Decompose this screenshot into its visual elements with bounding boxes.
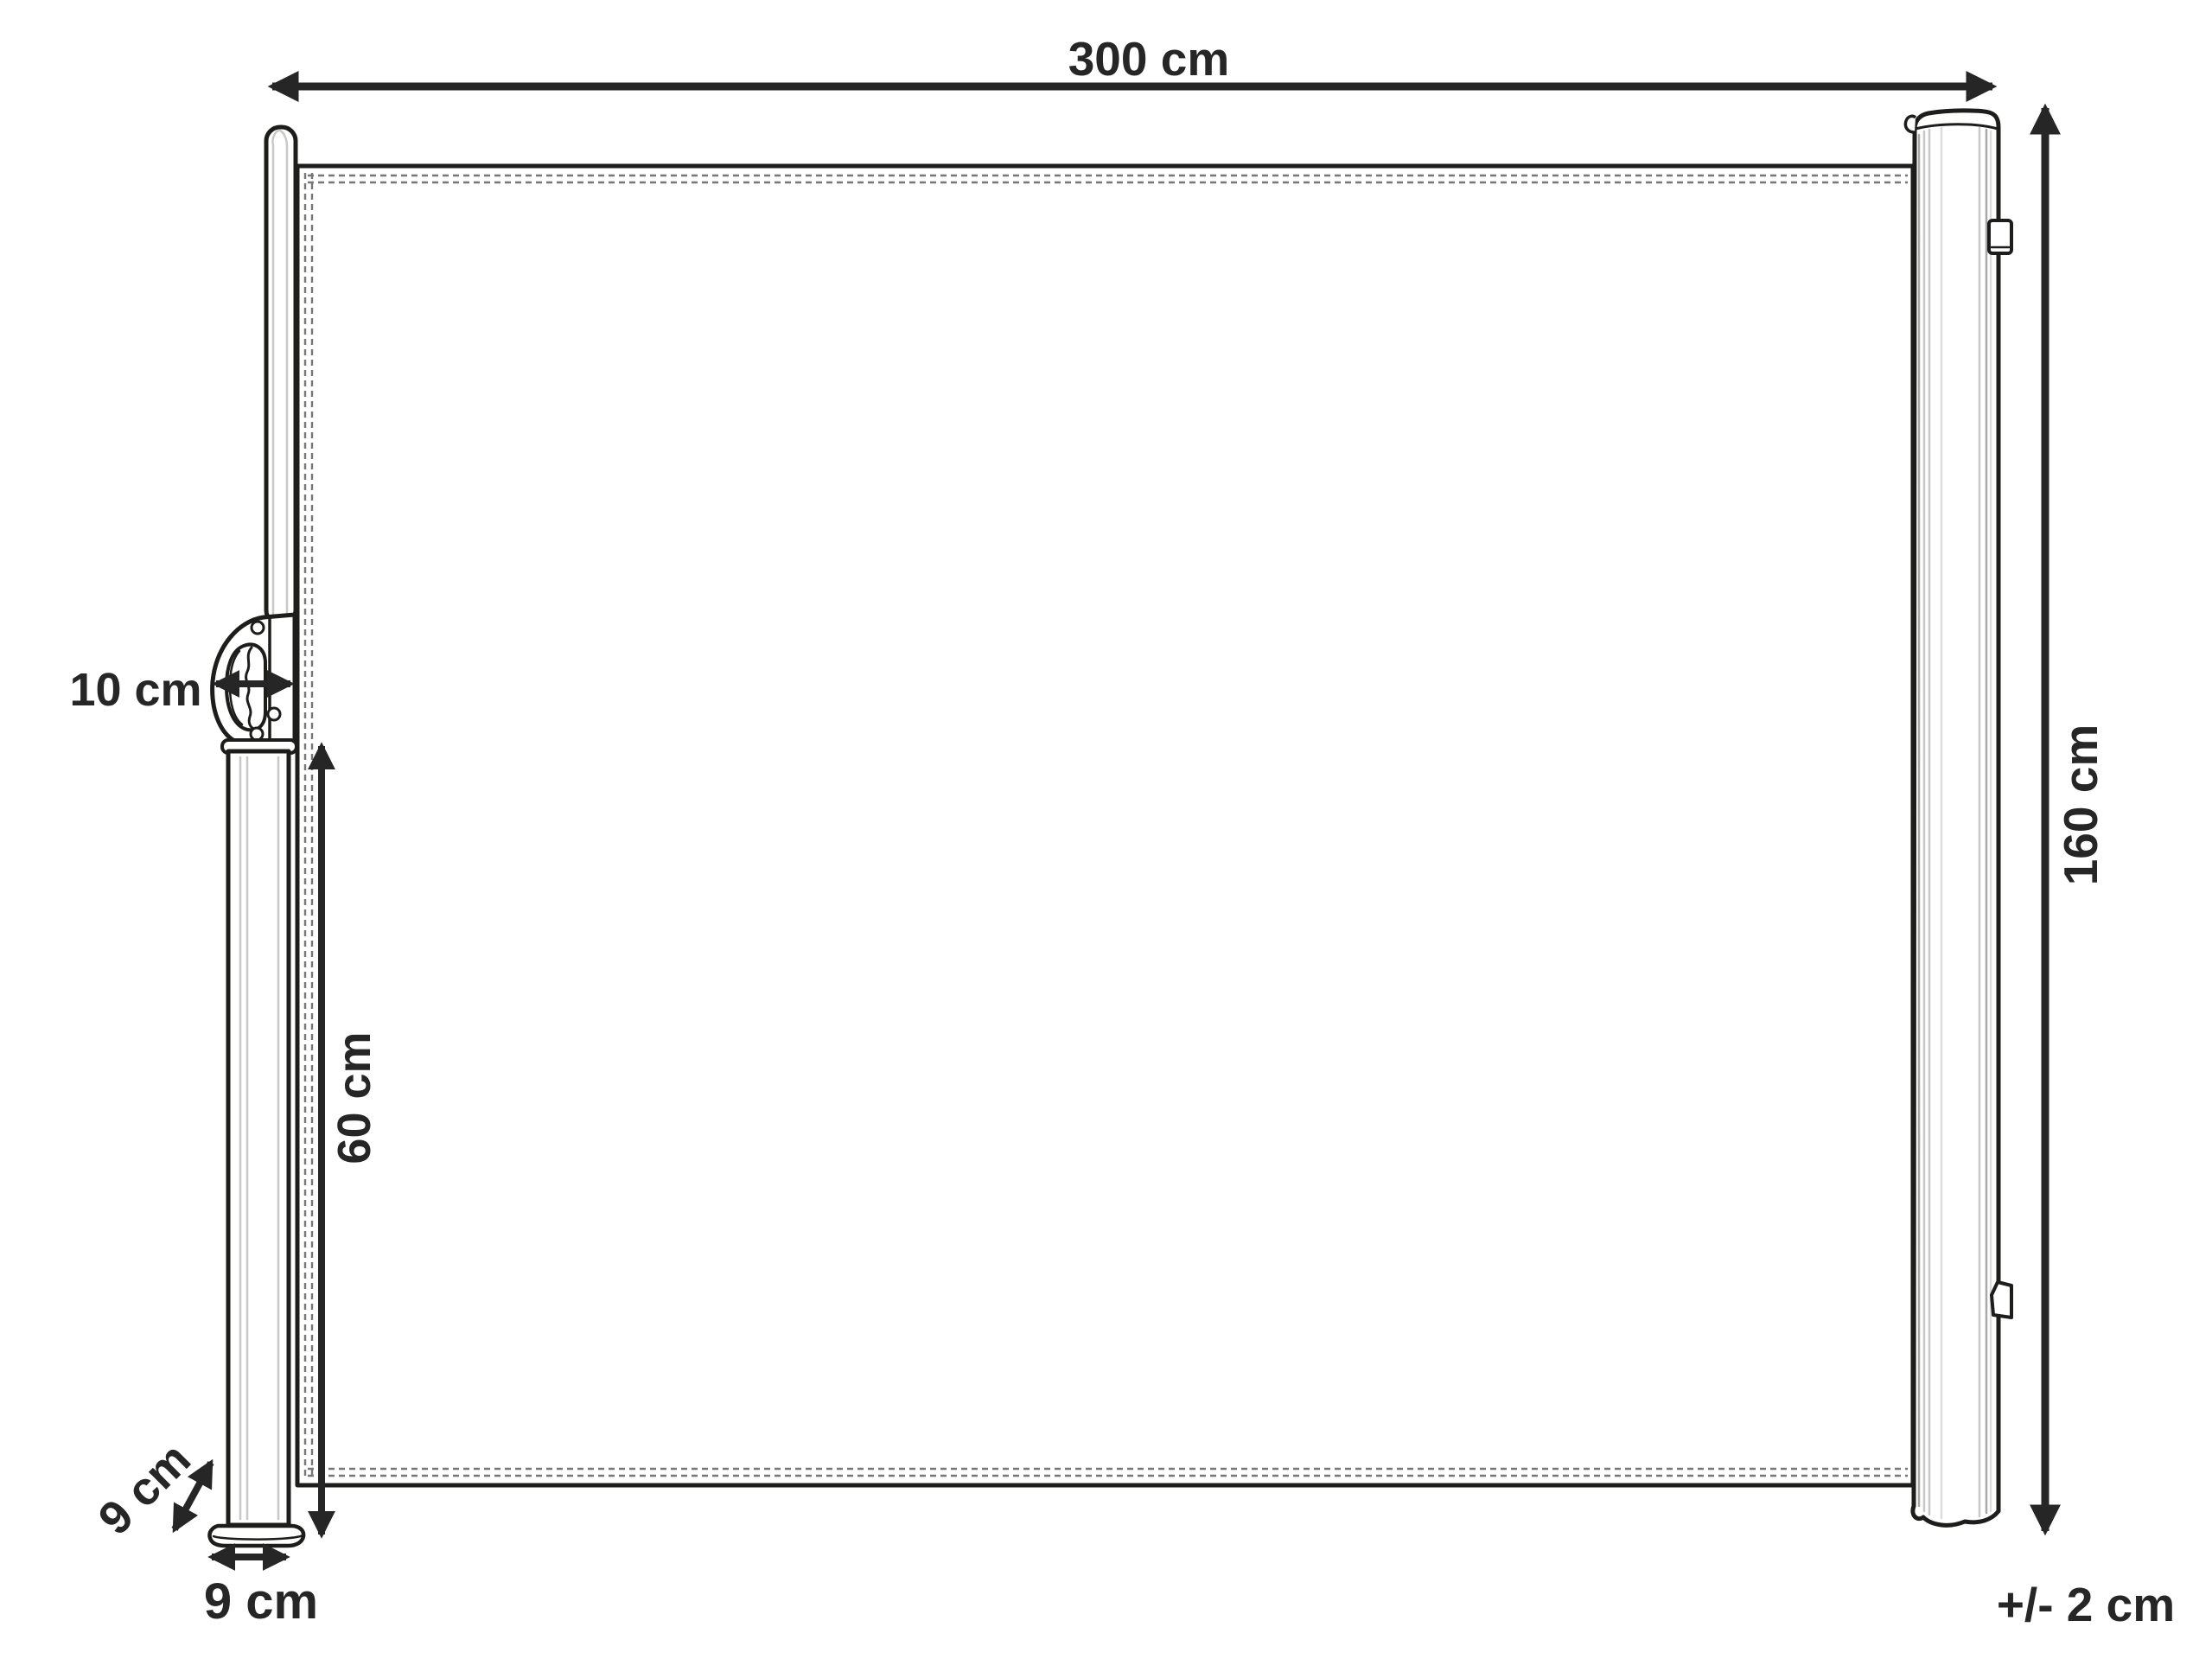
cassette-housing [1905, 111, 2011, 1525]
foot-width-label: 9 cm [204, 1573, 318, 1630]
pole-height-label: 60 cm [328, 1031, 380, 1164]
screw [252, 622, 264, 634]
height-tolerance-label: +/- 2 cm [1997, 1578, 2175, 1631]
awning-fabric [297, 166, 1913, 1485]
wall-mount-bracket-top [1989, 220, 2011, 253]
pole-foot-plate [209, 1526, 303, 1546]
handle-depth-label: 10 cm [69, 664, 201, 716]
height-dimension-label: 160 cm [2054, 724, 2107, 886]
wall-mount-bracket-bottom [1992, 1282, 2011, 1318]
front-pole-lower [228, 751, 289, 1525]
width-dimension-label: 300 cm [1068, 32, 1230, 86]
awning-dimension-diagram: 300 cm 160 cm 10 cm 60 cm 9 cm 9 cm +/- … [0, 0, 2212, 1659]
handle-bracket [213, 615, 295, 744]
foot-depth-label: 9 cm [89, 1433, 201, 1545]
diagram-canvas: 300 cm 160 cm 10 cm 60 cm 9 cm 9 cm +/- … [0, 0, 2212, 1659]
screw [251, 728, 263, 740]
cassette-top-lip [1905, 116, 1916, 132]
screw [268, 708, 280, 720]
front-pole-upper [266, 127, 296, 624]
